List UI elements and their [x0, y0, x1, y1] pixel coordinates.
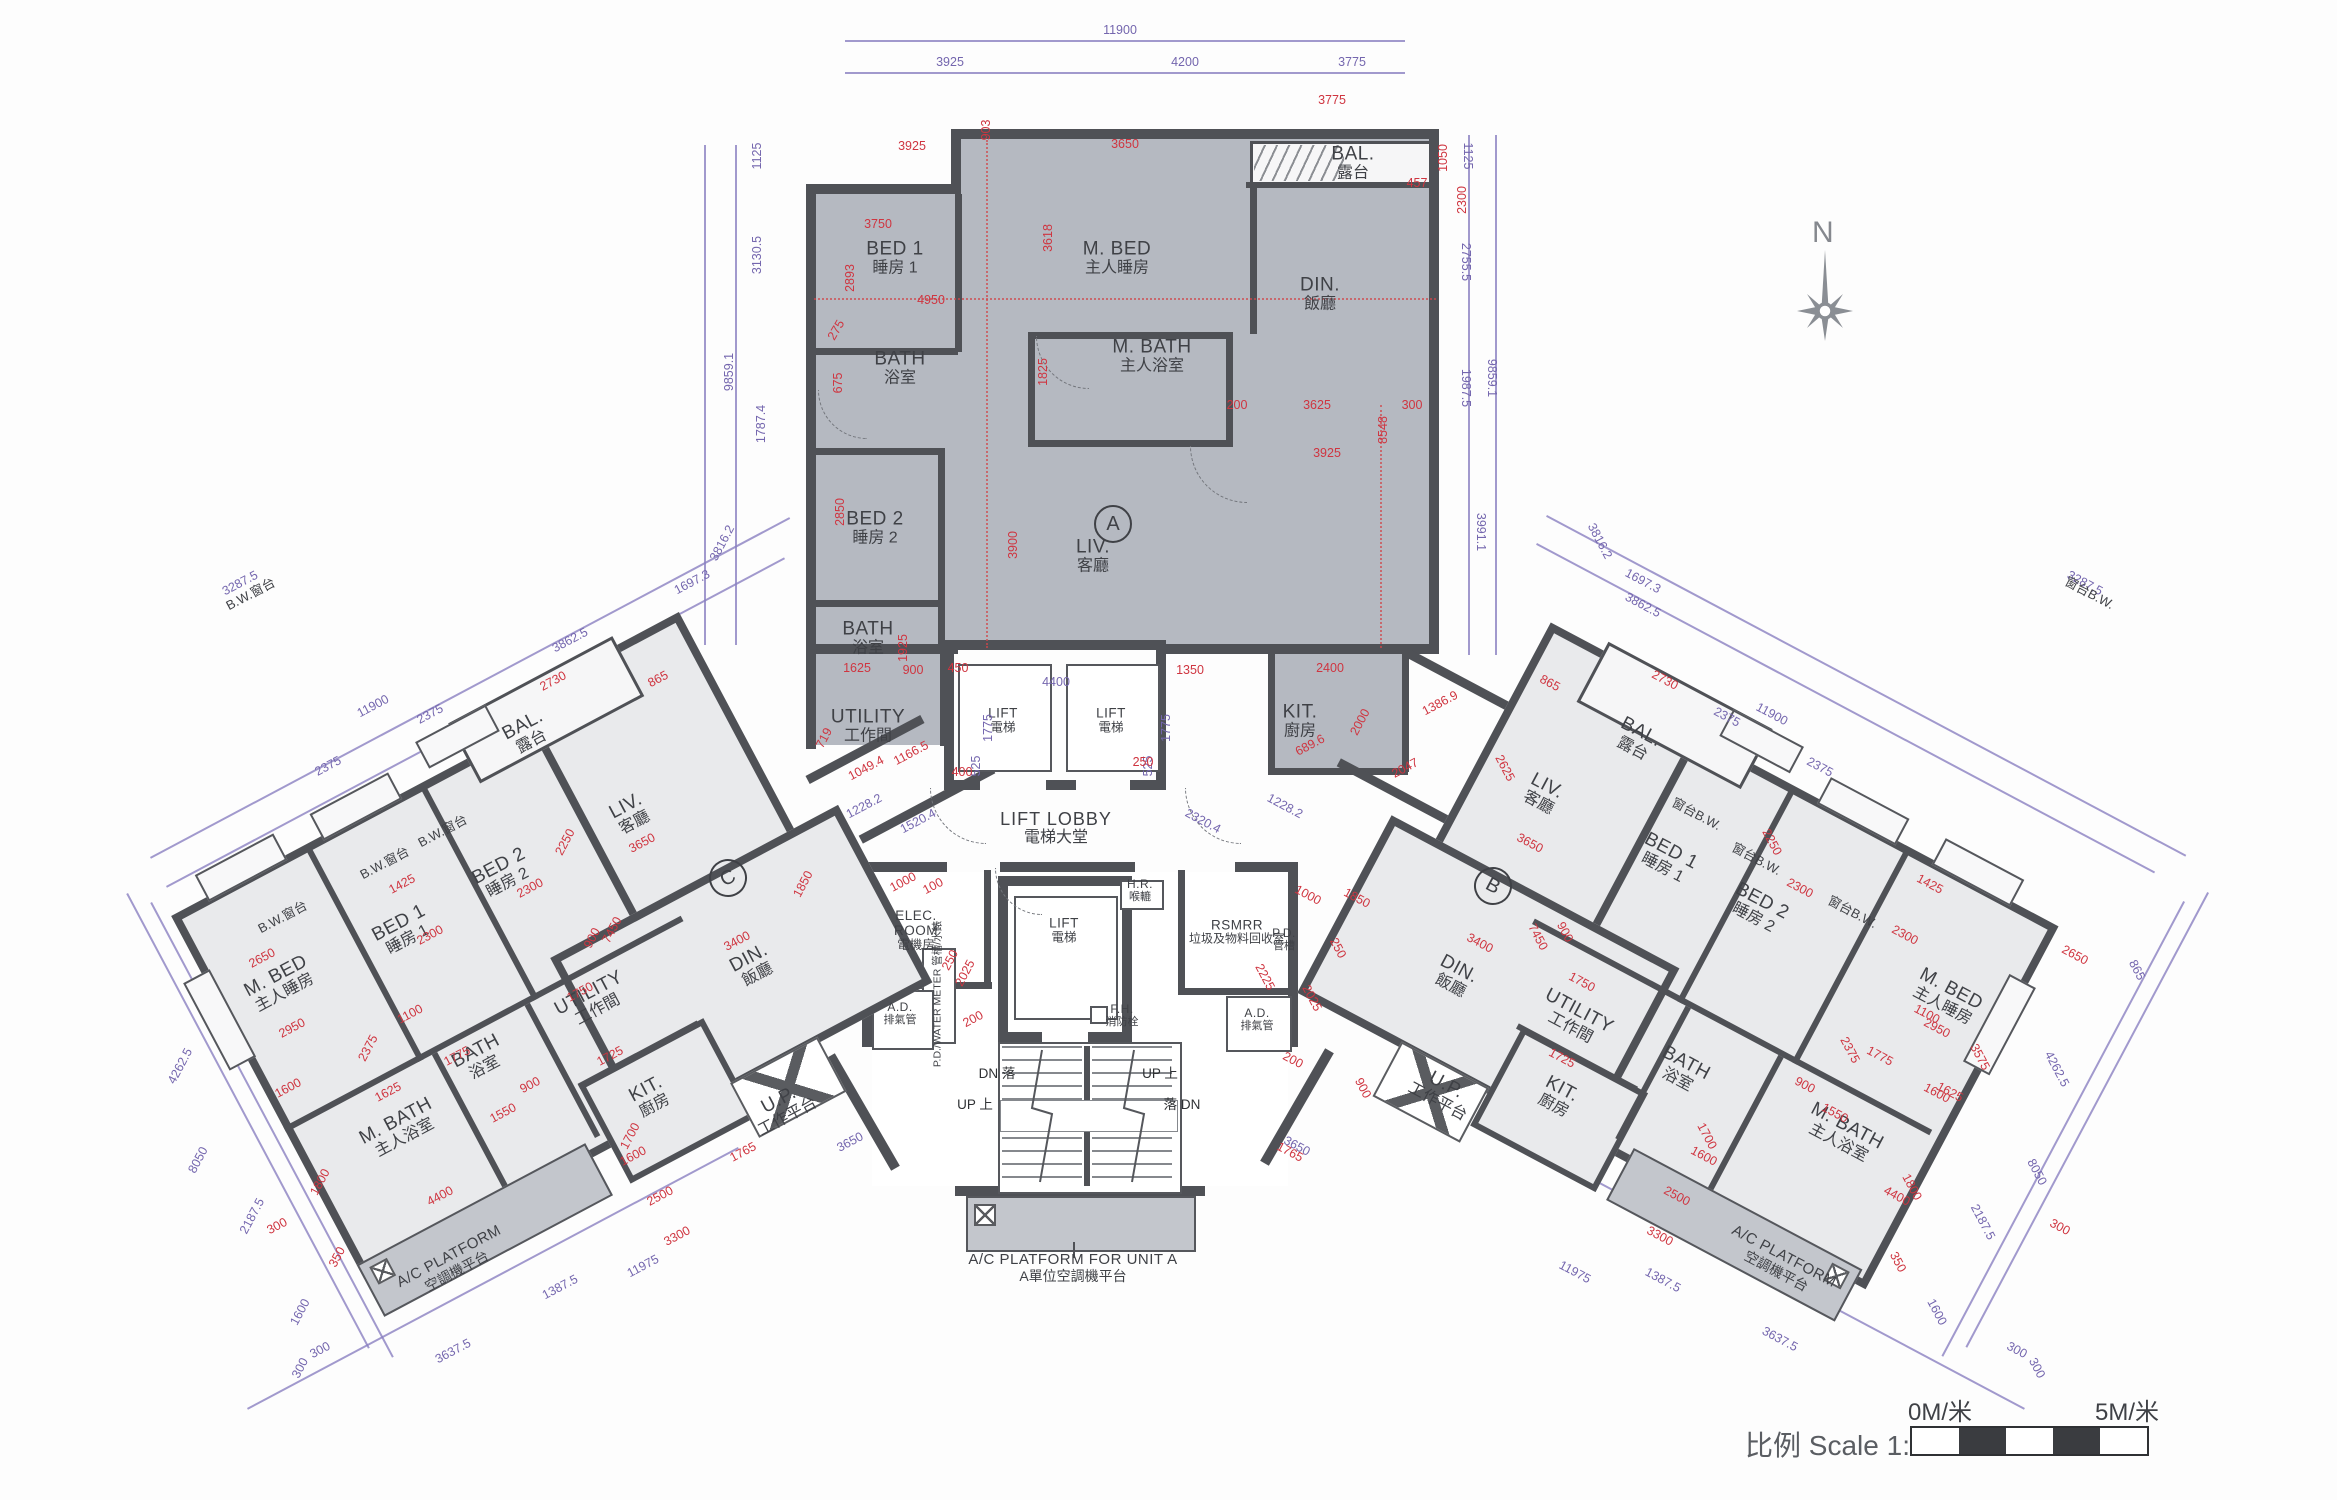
stair-direction-label: UP 上: [957, 1093, 993, 1113]
dimension-label: 1125: [1461, 143, 1475, 170]
air-duct-label-en: A.D.: [1241, 1007, 1274, 1020]
air-duct-label-zh: 排氣管: [1241, 1021, 1274, 1033]
dimension-label: 900: [903, 663, 924, 677]
dimension-label: 11900: [1103, 23, 1137, 37]
ac-platform-a-label: A/C PLATFORM FOR UNIT AA單位空調機平台: [968, 1252, 1177, 1284]
scale-segment: [1959, 1428, 2006, 1454]
dimension-label: 2300: [1455, 186, 1469, 214]
fire-hydrant-label: F.H.消防栓: [1106, 1003, 1139, 1029]
dimension-label: 2893: [843, 264, 857, 292]
partition-wall: [1028, 332, 1035, 447]
scale-segment: [1912, 1428, 1959, 1454]
dimension-label: 1987.5: [1459, 369, 1473, 407]
ac-platform-unit-a: [966, 1196, 1196, 1252]
wall: [951, 129, 1439, 139]
room-label: BED 1睡房 1: [866, 238, 923, 277]
air-duct-label-en: A.D.: [884, 1001, 917, 1014]
dimension-label: 903: [979, 120, 993, 141]
dimension-label: 1125: [750, 143, 764, 170]
dimension-label: 2650: [2059, 942, 2090, 967]
dimension-label: 457: [1407, 176, 1428, 190]
scale-prefix: 比例: [1745, 1430, 1801, 1461]
partition-wall: [810, 448, 945, 455]
dimension-label: 9859.1: [1485, 359, 1499, 397]
partition-wall: [938, 448, 945, 650]
dimension-label: 1775: [981, 714, 995, 742]
pd-water-meter-en: P.D./WATER METER: [932, 969, 944, 1067]
lift-label: LIFT電梯: [1049, 915, 1079, 944]
dimension-label: 2187.5: [1968, 1202, 1998, 1242]
air-duct-label-zh: 排氣管: [884, 1015, 917, 1027]
dimension-label: 300: [308, 1339, 333, 1361]
dimension-label: 250: [1133, 755, 1154, 769]
dimension-label: 450: [948, 661, 969, 675]
room-label: BATH浴室: [842, 618, 893, 657]
datum-line: [814, 298, 1436, 300]
air-duct-label: A.D.排氣管: [1241, 1007, 1274, 1033]
rsmrr-label: RSMRR垃圾及物料回收室: [1189, 918, 1285, 947]
dimension-label: 3925: [898, 139, 926, 153]
dimension-label: 3991.1: [1474, 513, 1488, 551]
lift-shaft-wall: [1130, 780, 1166, 790]
fire-hydrant-label-en: F.H.: [1106, 1003, 1139, 1016]
stair-break-line: [998, 1042, 1178, 1190]
dimension-label: 1925: [896, 634, 910, 662]
lift-shaft-wall: [998, 1032, 1042, 1042]
lift-label-zh: 電梯: [1096, 721, 1126, 735]
lift-label: LIFT電梯: [1096, 705, 1126, 734]
scale-segment: [2100, 1428, 2147, 1454]
rsmrr-label-zh: 垃圾及物料回收室: [1189, 933, 1285, 946]
dimension-label: 4400: [1042, 675, 1070, 689]
dimension-label: 350: [1887, 1250, 1909, 1275]
dimension-label: 2187.5: [237, 1196, 267, 1236]
room-label: BED 2睡房 2: [846, 508, 903, 547]
dimension-label: 3300: [661, 1223, 692, 1248]
dimension-label: 3625: [1303, 398, 1331, 412]
fire-hydrant-label-zh: 消防栓: [1106, 1017, 1139, 1029]
room-label-en: BAL.: [1331, 143, 1374, 164]
lift-label-zh: 電梯: [1049, 931, 1079, 945]
room-label-zh: 工作間: [831, 728, 905, 746]
room-label-en: M. BATH: [1112, 336, 1191, 357]
partition-wall: [1226, 332, 1233, 447]
dimension-label: 3816.2: [1585, 521, 1615, 561]
dimension-label: 1050: [1436, 144, 1450, 172]
room-label-en: BED 1: [866, 238, 923, 259]
room-label-zh: 睡房 1: [866, 260, 923, 278]
ac-unit-box: [974, 1204, 996, 1226]
dimension-label: 3775: [1318, 93, 1346, 107]
lift-lobby-label-en: LIFT LOBBY: [1000, 809, 1112, 829]
dimension-label: 3650: [1111, 137, 1139, 151]
dimension-label: 1387.5: [540, 1272, 580, 1302]
room-label: LIV.客廳: [1076, 536, 1110, 575]
dimension-label: 675: [831, 373, 845, 394]
partition-wall: [955, 194, 962, 352]
dimension-label: 3925: [1313, 446, 1341, 460]
lift-shaft-wall: [1088, 1032, 1132, 1042]
dimension-label: 1787.4: [754, 405, 768, 443]
room-label-en: BATH: [874, 348, 925, 369]
dimension-label: 3130.5: [750, 236, 764, 274]
dimension-label: 300: [1402, 398, 1423, 412]
hose-reel-label: H.R.喉轆: [1127, 878, 1153, 904]
unit-letter-badge: A: [1094, 505, 1132, 543]
room-label-zh: 露台: [1331, 165, 1374, 183]
scale-segment: [2053, 1428, 2100, 1454]
dimension-label: 865: [2126, 958, 2148, 983]
dimension-label: 2755.5: [1459, 243, 1473, 281]
lift-label-en: LIFT: [1096, 705, 1126, 720]
room-label-en: KIT.: [1283, 701, 1318, 722]
room-label: BATH浴室: [874, 348, 925, 387]
rsmrr-label-en: RSMRR: [1189, 918, 1285, 933]
room-label-zh: 睡房 2: [846, 530, 903, 548]
dimension-label: 8050: [185, 1144, 210, 1175]
wall: [806, 184, 961, 194]
room-label: BAL.露台: [1331, 143, 1374, 182]
north-arrow: N: [1790, 210, 1860, 345]
dimension-label: 4200: [1171, 55, 1199, 69]
dimension-label: 1825: [1036, 358, 1050, 386]
dimension-line: [845, 72, 1405, 74]
air-duct-label: A.D.排氣管: [884, 1001, 917, 1027]
dimension-label: 1350: [1176, 663, 1204, 677]
ac-platform-a-label-en: A/C PLATFORM FOR UNIT A: [968, 1252, 1177, 1269]
room-label: M. BATH主人浴室: [1112, 336, 1191, 375]
dimension-label: 1775: [1159, 714, 1173, 742]
datum-line: [986, 140, 988, 648]
dimension-line: [845, 40, 1405, 42]
dimension-label: 4262.5: [165, 1046, 195, 1086]
lift-lobby-label-zh: 電梯大堂: [1000, 829, 1112, 847]
dimension-label: 2400: [1316, 661, 1344, 675]
scale-segment: [2006, 1428, 2053, 1454]
dimension-label: 3775: [1338, 55, 1366, 69]
dimension-label: 3750: [864, 217, 892, 231]
dimension-label: 3650: [834, 1129, 865, 1154]
dimension-label: 3925: [936, 55, 964, 69]
dimension-label: 300: [2026, 1356, 2048, 1381]
dimension-label: 3618: [1041, 224, 1055, 252]
lift-label-en: LIFT: [1049, 915, 1079, 930]
pipe-duct-label: P.D.管槽: [1272, 927, 1296, 953]
dimension-label: 1600: [1924, 1296, 1949, 1327]
dimension-label: 11975: [1557, 1258, 1593, 1286]
scale-start: 0M/米: [1908, 1392, 1972, 1427]
scale-bar: [1910, 1426, 2149, 1456]
room-label-zh: 客廳: [1076, 558, 1110, 576]
dimension-label: 400: [952, 765, 973, 779]
dimension-label: 300: [2048, 1216, 2073, 1238]
hose-reel-label-en: H.R.: [1127, 878, 1153, 891]
dimension-label: 3900: [1006, 531, 1020, 559]
room-label-zh: 飯廳: [1300, 296, 1340, 314]
dimension-label: 3637.5: [433, 1336, 473, 1366]
partition-wall: [1250, 186, 1257, 334]
room-label-en: BED 2: [846, 508, 903, 529]
room-label-zh: 浴室: [842, 640, 893, 658]
dimension-label: 300: [265, 1215, 290, 1237]
pipe-duct-label-en: P.D.: [1272, 927, 1296, 940]
lift-shaft-wall: [1046, 780, 1076, 790]
dimension-label: 1600: [287, 1296, 312, 1327]
dimension-label: 8548: [1376, 416, 1390, 444]
lift-lobby-label: LIFT LOBBY電梯大堂: [1000, 809, 1112, 847]
room-label-zh: 浴室: [874, 370, 925, 388]
ac-platform-a-label-zh: A單位空調機平台: [968, 1269, 1177, 1285]
wall: [951, 139, 961, 194]
pipe-duct-label-zh: 管槽: [1272, 941, 1296, 953]
room-label-zh: 主人睡房: [1083, 260, 1151, 278]
scale-end: 5M/米: [2095, 1392, 2159, 1427]
room-label: DIN.飯廳: [1300, 274, 1340, 313]
room-label-en: M. BED: [1083, 238, 1151, 259]
room-label-en: BATH: [842, 618, 893, 639]
dimension-label: 2850: [833, 498, 847, 526]
room-label-en: UTILITY: [831, 706, 905, 727]
dimension-label: 4262.5: [2042, 1049, 2072, 1089]
dimension-label: 9859.1: [722, 353, 736, 391]
lift-shaft-wall: [944, 640, 1166, 650]
room-label: UTILITY工作間: [831, 706, 905, 745]
pd-water-meter-label: P.D./WATER METER 管槽/水錶: [930, 921, 945, 1067]
room-label-en: DIN.: [1300, 274, 1340, 295]
hose-reel-label-zh: 喉轆: [1127, 892, 1153, 904]
dimension-label: 11975: [625, 1252, 661, 1280]
north-letter: N: [1812, 216, 1834, 249]
room-label-zh: 主人浴室: [1112, 358, 1191, 376]
floor-plan-canvas: N 比例 Scale 1:150 0M/米 5M/米 1190039254200…: [0, 0, 2337, 1500]
dimension-label: 1625: [843, 661, 871, 675]
dimension-label: 200: [1227, 398, 1248, 412]
dimension-label: 300: [2005, 1339, 2030, 1361]
dimension-label: 4950: [917, 293, 945, 307]
room-label: M. BED主人睡房: [1083, 238, 1151, 277]
